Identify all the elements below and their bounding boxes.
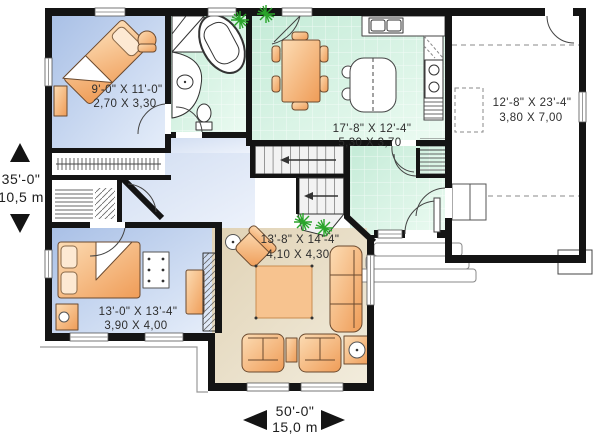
- floor-plan-page: 9'-0" X 11'-0" 2,70 X 3,30 17'-8" X 12'-…: [0, 0, 600, 440]
- toilet: [196, 104, 212, 130]
- width-metric: 15,0 m: [272, 419, 318, 435]
- arrow-up-icon: [10, 143, 30, 162]
- loveseat: [242, 334, 284, 372]
- living-dim-imperial: 13'-8" X 14'-4": [261, 234, 340, 246]
- garage-entry-steps: [452, 184, 486, 220]
- stove: [425, 60, 443, 98]
- living-dim-metric: 4,10 X 4,30: [266, 249, 329, 261]
- dresser-master: [186, 270, 204, 314]
- arrow-down-icon: [10, 214, 30, 233]
- sofa: [330, 246, 362, 332]
- garage-dim-imperial: 12'-8" X 23'-4": [493, 97, 572, 109]
- loveseat: [299, 334, 341, 372]
- chair-seat: [138, 44, 156, 52]
- bedroom-upper-dim-imperial: 9'-0" X 11'-0": [91, 84, 162, 96]
- master-bench: [56, 304, 78, 330]
- side-table: [286, 338, 297, 362]
- bedroom-upper-dim-metric: 2,70 X 3,30: [93, 98, 156, 110]
- master-dim-metric: 3,90 X 4,00: [104, 320, 167, 332]
- master-side-table: [143, 252, 169, 288]
- floor-plan: 9'-0" X 11'-0" 2,70 X 3,30 17'-8" X 12'-…: [0, 0, 600, 440]
- master-dim-imperial: 13'-0" X 13'-4": [99, 306, 178, 318]
- closet-shelves: [55, 188, 115, 219]
- arrow-left-icon: [243, 410, 267, 430]
- depth-imperial: 35'-0": [2, 171, 41, 187]
- terrace-outline: [40, 347, 208, 392]
- closet-rod: [56, 158, 161, 170]
- arrow-right-icon: [321, 410, 345, 430]
- kitchen-sink: [369, 18, 403, 33]
- width-imperial: 50'-0": [276, 403, 315, 419]
- kitchen-dim-metric: 5,30 X 3,70: [338, 137, 401, 149]
- rug: [255, 265, 314, 320]
- front-door: [434, 198, 440, 232]
- foyer-closet: [418, 150, 446, 174]
- lamp-table: [344, 336, 370, 364]
- depth-metric: 10,5 m: [0, 189, 44, 205]
- dresser-upper: [54, 86, 67, 116]
- kitchen-dim-imperial: 17'-8" X 12'-4": [333, 123, 412, 135]
- bed-master: [58, 242, 140, 298]
- garage-dim-metric: 3,80 X 7,00: [499, 112, 562, 124]
